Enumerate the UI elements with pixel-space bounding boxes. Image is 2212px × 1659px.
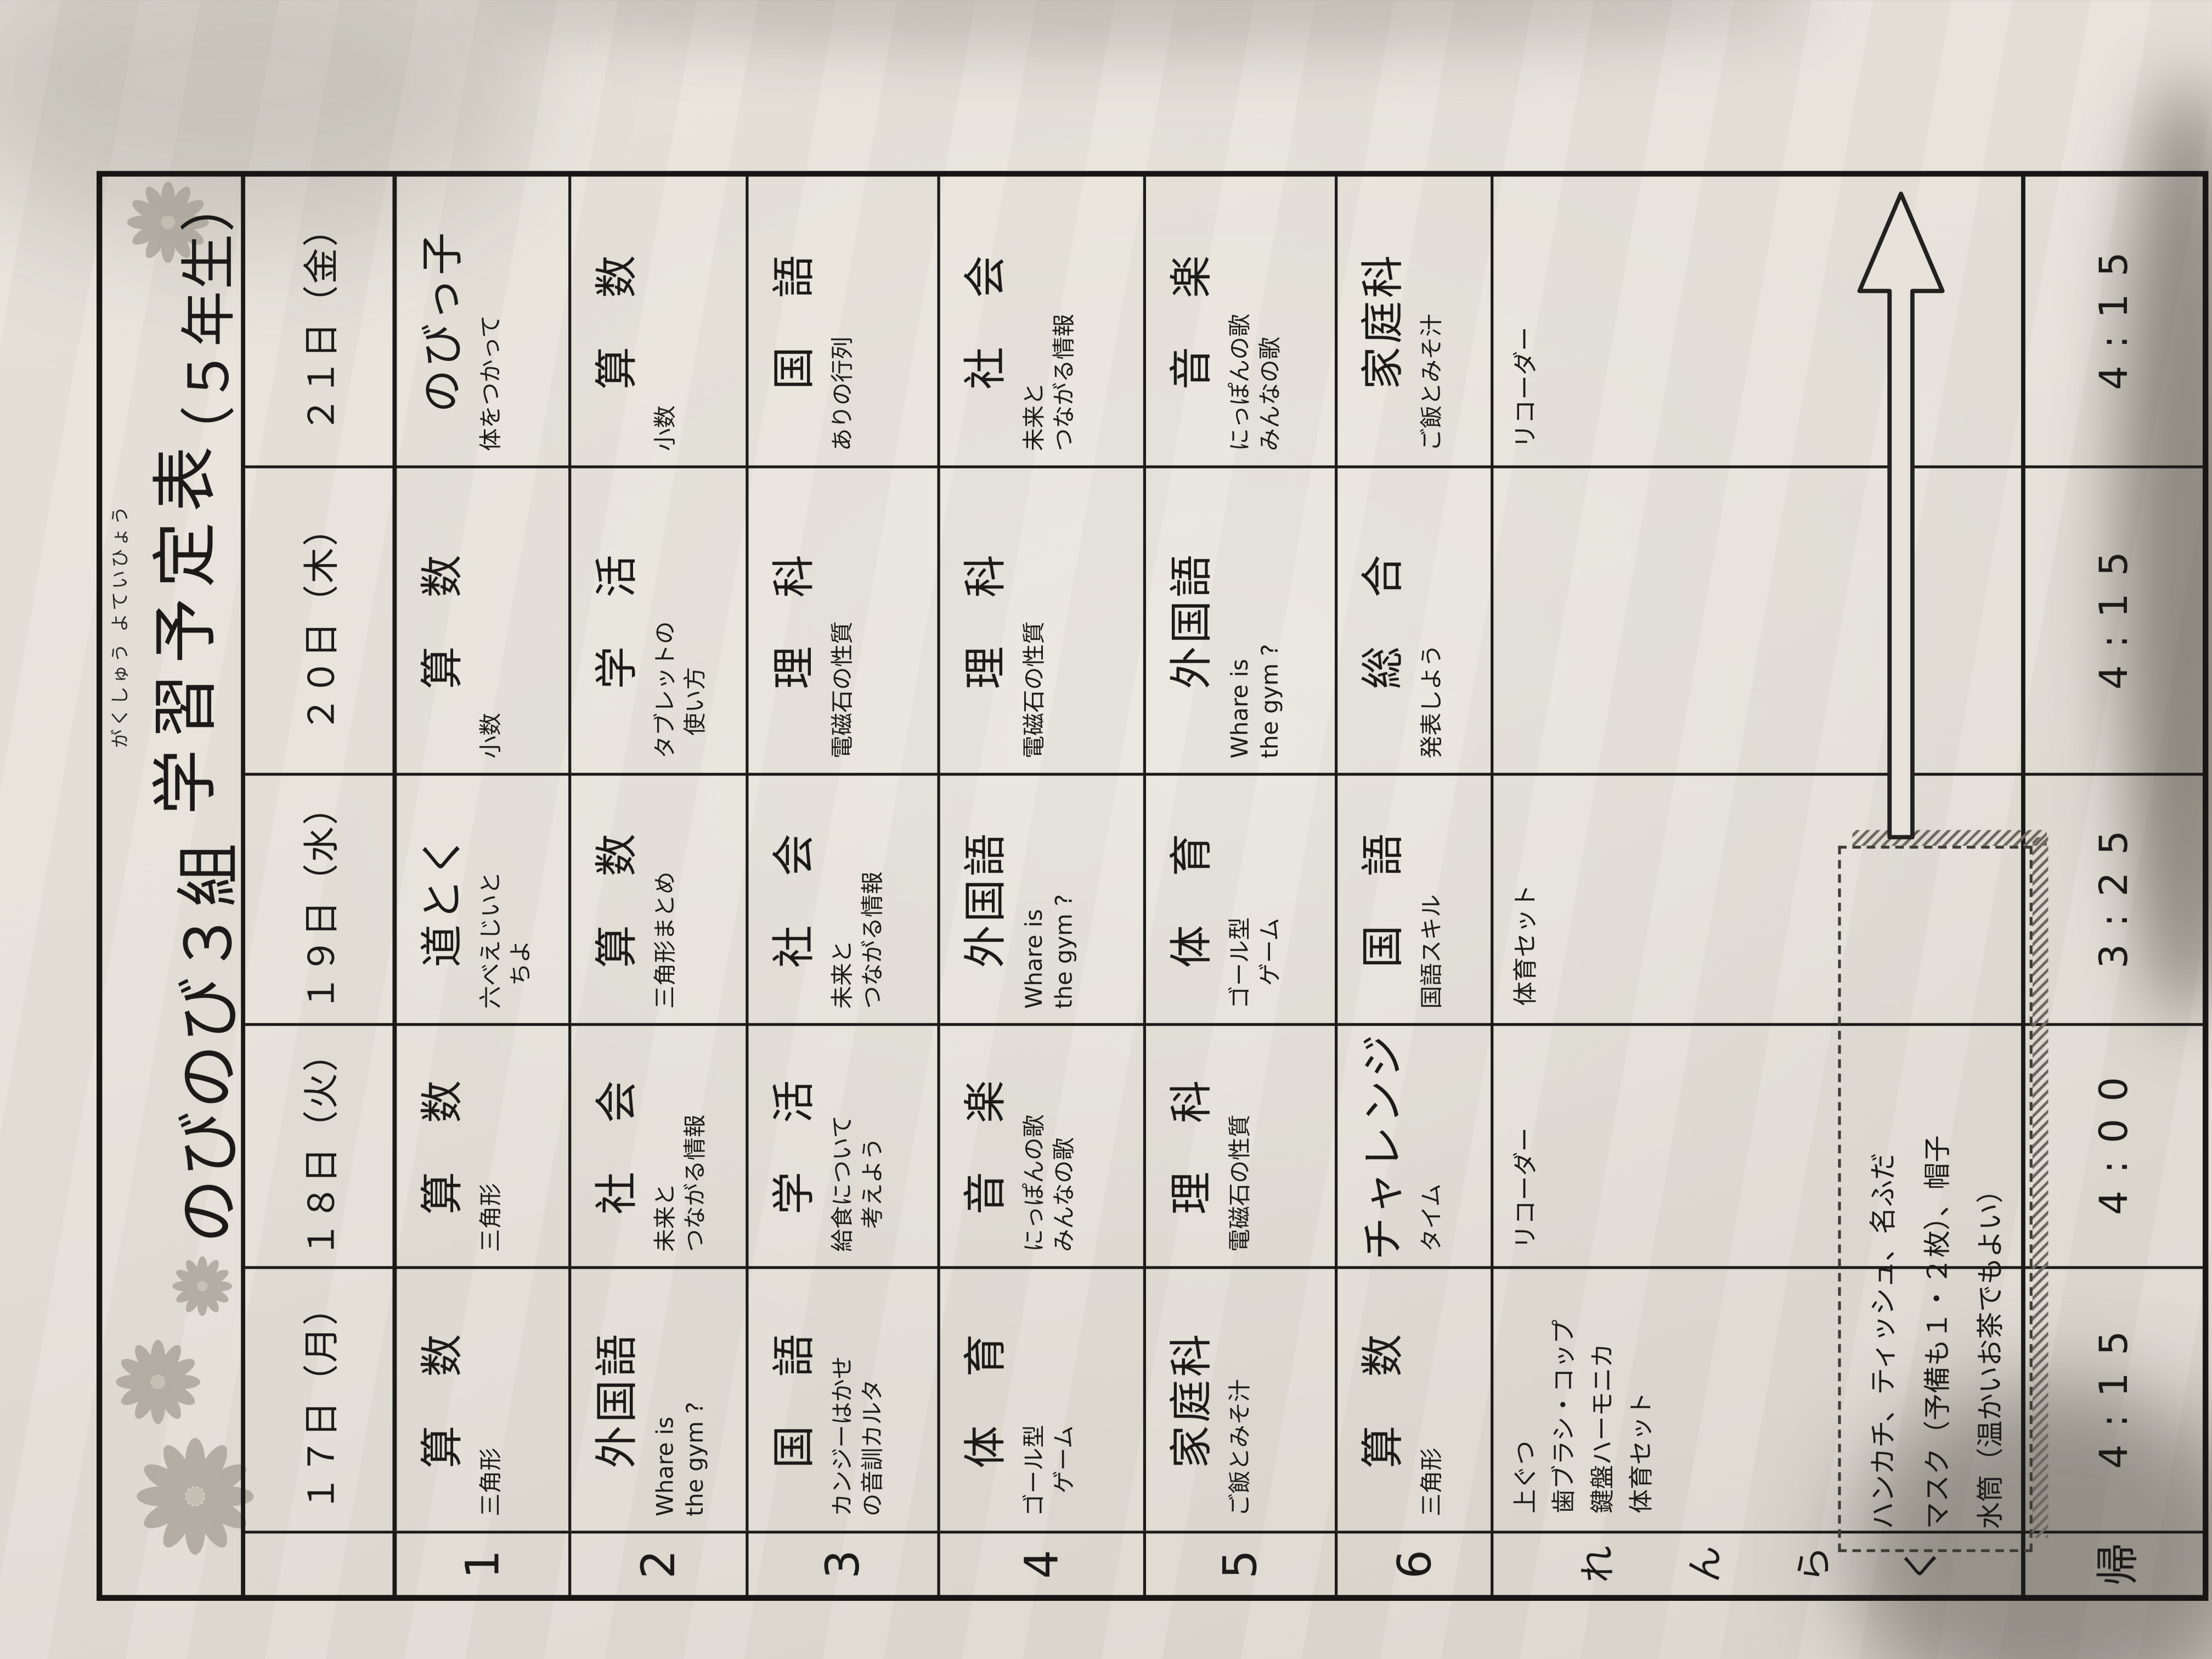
day-header-wed: １９日（水） (245, 773, 397, 1023)
cell-mon-2: 外国語Whare isthe gym ? (571, 1266, 748, 1531)
topic-line: ゴール型 (1224, 778, 1255, 1009)
renraku-char: れ (1568, 1545, 1621, 1583)
cell-fri-4: 社 会未来とつながる情報 (940, 177, 1146, 465)
note-line: マスク（予備も１・２枚）、帽子 (1916, 868, 1954, 1529)
renraku-items (1493, 469, 1508, 773)
topic-line: ちよ (505, 778, 535, 1009)
title-furigana: がくしゅう よていひょう (105, 420, 133, 832)
cell-wed-2: 算 数三角形まとめ (571, 773, 748, 1023)
renraku-line: リコーダー (1508, 182, 1546, 448)
topic-line: Whare is (1224, 471, 1255, 759)
topic-line: 電磁石の性質 (1019, 471, 1049, 759)
cell-wed-5: 体 育ゴール型 ゲーム (1146, 773, 1338, 1023)
topic-line: 三角形 (476, 1272, 506, 1516)
subject-text: 理 科 (1156, 1026, 1219, 1266)
flower-icon (171, 1255, 234, 1318)
topic-line: にっぽんの歌 (1019, 1029, 1049, 1252)
cell-tue-5: 理 科電磁石の性質 (1146, 1023, 1338, 1266)
note-line: 水筒（温かいお茶でもよい） (1970, 868, 2008, 1529)
renraku-line: 鍵盤ハーモニカ (1585, 1275, 1623, 1514)
subject-text: 国 語 (759, 177, 822, 465)
topic-text: 発表しよう (1410, 469, 1446, 773)
page-title: 学習予定表 (134, 420, 228, 832)
topic-text: 電磁石の性質 (1013, 469, 1049, 773)
cell-wed-1: 道とく六べえじいと ちよ (397, 773, 571, 1023)
subject-text: 家庭科 (1156, 1269, 1219, 1531)
topic-line: 小数 (650, 179, 680, 451)
day-header-tue: １８日（火） (245, 1023, 397, 1266)
topic-line: カンジーはかせ (827, 1272, 857, 1516)
cell-thu-4: 理 科電磁石の性質 (940, 465, 1146, 772)
cell-fri-6: 家庭科ご飯とみそ汁 (1338, 177, 1493, 465)
renraku-char: ん (1677, 1545, 1729, 1583)
renraku-line: 上ぐつ (1508, 1275, 1546, 1514)
schedule-sheet: のびのび３組 がくしゅう よていひょう 学習予定表 （５年生） １７日（月） １… (97, 171, 2209, 1600)
topic-text: ありの行列 (821, 177, 857, 465)
subject-text: 体 育 (950, 1269, 1013, 1531)
topic-line: ゲーム (1049, 1272, 1079, 1516)
class-name: のびのび３組 (156, 840, 249, 1243)
day-header-fri: ２１日（金） (245, 177, 397, 465)
topic-line: つながる情報 (857, 778, 887, 1009)
period-label-1: 1 (397, 1531, 571, 1595)
renraku-line: 歯ブラシ・コップ (1547, 1275, 1585, 1514)
topic-line: 未来と (827, 778, 857, 1009)
cell-tue-4: 音 楽にっぽんの歌みんなの歌 (940, 1023, 1146, 1266)
topic-line: 未来と (1019, 179, 1049, 451)
topic-line: みんなの歌 (1049, 1029, 1079, 1252)
topic-text: タイム (1410, 1026, 1446, 1266)
schedule-photo: のびのび３組 がくしゅう よていひょう 学習予定表 （５年生） １７日（月） １… (0, 0, 2212, 1659)
topic-line: タイム (1417, 1029, 1447, 1252)
topic-line: の音訓カルタ (857, 1272, 887, 1516)
topic-text: 電磁石の性質 (821, 469, 857, 773)
subject-text: 外国語 (950, 776, 1013, 1023)
topic-line: the gym ? (1049, 778, 1079, 1009)
topic-line: Whare is (650, 1272, 680, 1516)
topic-text: 未来とつながる情報 (1013, 177, 1079, 465)
cell-tue-1: 算 数三角形 (397, 1023, 571, 1266)
dismissal-time-mon: 4:15 (2025, 1266, 2203, 1531)
topic-text: 三角形 (470, 1269, 505, 1531)
subject-text: 国 語 (759, 1269, 822, 1531)
topic-line: ご飯とみそ汁 (1417, 179, 1447, 451)
subject-text: 外国語 (1156, 469, 1219, 773)
subject-text: 社 会 (950, 177, 1013, 465)
cell-wed-3: 社 会未来とつながる情報 (748, 773, 940, 1023)
note-line: ハンカチ、ティッシュ、名ふだ (1862, 868, 1900, 1529)
subject-text: 算 数 (1347, 1269, 1410, 1531)
subject-text: 算 数 (407, 1269, 470, 1531)
topic-text: 給食について 考えよう (821, 1026, 887, 1266)
subject-text: 音 楽 (1156, 177, 1219, 465)
period-label-6: 6 (1338, 1531, 1493, 1595)
subject-text: 家庭科 (1347, 177, 1410, 465)
main-title-block: がくしゅう よていひょう 学習予定表 (105, 420, 228, 832)
topic-line: 未来と (650, 1029, 680, 1252)
renraku-items: リコーダー (1493, 177, 1546, 465)
topic-text: 三角形 (470, 1026, 505, 1266)
note-box: ハンカチ、ティッシュ、名ふだ マスク（予備も１・２枚）、帽子 水筒（温かいお茶で… (1838, 846, 2032, 1553)
topic-line: 電磁石の性質 (1224, 1029, 1255, 1252)
cell-thu-3: 理 科電磁石の性質 (748, 465, 940, 772)
cell-mon-4: 体 育ゴール型 ゲーム (940, 1266, 1146, 1531)
renraku-char: ら (1785, 1545, 1837, 1583)
renraku-items: リコーダー (1493, 1026, 1546, 1266)
cell-mon-1: 算 数三角形 (397, 1266, 571, 1531)
topic-text: ゴール型 ゲーム (1219, 776, 1285, 1023)
topic-text: 未来とつながる情報 (644, 1026, 710, 1266)
cell-thu-5: 外国語Whare isthe gym ? (1146, 465, 1338, 772)
topic-text: Whare isthe gym ? (644, 1269, 710, 1531)
subject-text: 算 数 (581, 776, 644, 1023)
topic-text: 国語スキル (1410, 776, 1446, 1023)
topic-line: 給食について (827, 1029, 857, 1252)
topic-line: ご飯とみそ汁 (1224, 1272, 1255, 1516)
topic-line: 電磁石の性質 (827, 471, 857, 759)
topic-line: 三角形まとめ (650, 778, 680, 1009)
cell-mon-6: 算 数三角形 (1338, 1266, 1493, 1531)
period-label-4: 4 (940, 1531, 1146, 1595)
topic-line: つながる情報 (680, 1029, 710, 1252)
topic-text: Whare isthe gym ? (1013, 776, 1079, 1023)
dismissal-time-fri: 4:15 (2025, 177, 2203, 465)
cell-thu-2: 学 活タブレットの 使い方 (571, 465, 748, 772)
dismissal-time-thu: 4:15 (2025, 465, 2203, 772)
topic-text: ご飯とみそ汁 (1219, 1269, 1255, 1531)
topic-line: the gym ? (680, 1272, 710, 1516)
cell-tue-3: 学 活給食について 考えよう (748, 1023, 940, 1266)
flower-icon (114, 1338, 202, 1426)
cell-tue-2: 社 会未来とつながる情報 (571, 1023, 748, 1266)
topic-line: 国語スキル (1417, 778, 1447, 1009)
cell-thu-6: 総 合発表しよう (1338, 465, 1493, 772)
grade-label: （５年生） (165, 175, 245, 461)
topic-line: 小数 (476, 471, 506, 759)
subject-text: 音 楽 (950, 1026, 1013, 1266)
subject-text: 外国語 (581, 1269, 644, 1531)
subject-text: 理 科 (950, 469, 1013, 773)
topic-line: ゴール型 (1019, 1272, 1049, 1516)
topic-text: ゴール型 ゲーム (1013, 1269, 1079, 1531)
subject-text: 体 育 (1156, 776, 1219, 1023)
topic-line: 六べえじいと (476, 778, 506, 1009)
period-label-3: 3 (748, 1531, 940, 1595)
subject-text: 総 合 (1347, 469, 1410, 773)
subject-text: 学 活 (759, 1026, 822, 1266)
cell-wed-4: 外国語Whare isthe gym ? (940, 773, 1146, 1023)
topic-line: 発表しよう (1417, 471, 1447, 759)
sheet-title-bar: のびのび３組 がくしゅう よていひょう 学習予定表 （５年生） (102, 177, 241, 1595)
topic-text: 未来とつながる情報 (821, 776, 887, 1023)
subject-text: 算 数 (407, 469, 470, 773)
cell-mon-3: 国 語カンジーはかせの音訓カルタ (748, 1266, 940, 1531)
topic-text: 小数 (470, 469, 505, 773)
dismissal-time-wed: 3:25 (2025, 773, 2203, 1023)
subject-text: 算 数 (407, 1026, 470, 1266)
subject-text: 国 語 (1347, 776, 1410, 1023)
topic-line: みんなの歌 (1255, 179, 1285, 451)
subject-text: のびっ子 (407, 177, 470, 465)
renraku-line: 体育セット (1508, 781, 1546, 1006)
topic-text: 三角形 (1410, 1269, 1446, 1531)
cell-fri-3: 国 語ありの行列 (748, 177, 940, 465)
topic-line: ゲーム (1255, 778, 1285, 1009)
cell-fri-2: 算 数小数 (571, 177, 748, 465)
flower-icon (134, 1435, 257, 1558)
subject-text: 算 数 (581, 177, 644, 465)
cell-wed-6: 国 語国語スキル (1338, 773, 1493, 1023)
topic-line: ありの行列 (827, 179, 857, 451)
week-arrow-icon (1844, 182, 1959, 845)
cell-fri-1: のびっ子体をつかって (397, 177, 571, 465)
topic-line: Whare is (1019, 778, 1049, 1009)
subject-text: 社 会 (759, 776, 822, 1023)
topic-line: 考えよう (857, 1029, 887, 1252)
topic-text: にっぽんの歌みんなの歌 (1013, 1026, 1079, 1266)
topic-line: タブレットの (650, 471, 680, 759)
topic-text: 小数 (644, 177, 680, 465)
subject-text: 道とく (407, 776, 470, 1023)
cell-thu-1: 算 数小数 (397, 465, 571, 772)
dismissal-label: 帰 (2025, 1531, 2203, 1595)
renraku-line: 体育セット (1623, 1275, 1662, 1514)
renraku-line: リコーダー (1508, 1031, 1546, 1249)
topic-text: 三角形まとめ (644, 776, 680, 1023)
topic-line: 使い方 (680, 471, 710, 759)
dismissal-time-tue: 4:00 (2025, 1023, 2203, 1266)
day-header-thu: ２０日（木） (245, 465, 397, 772)
topic-text: 電磁石の性質 (1219, 1026, 1255, 1266)
cell-tue-6: チャレンジタイム (1338, 1023, 1493, 1266)
subject-text: 学 活 (581, 469, 644, 773)
topic-text: Whare isthe gym ? (1219, 469, 1285, 773)
topic-line: the gym ? (1255, 471, 1285, 759)
renraku-items: 上ぐつ歯ブラシ・コップ鍵盤ハーモニカ体育セット (1493, 1269, 1662, 1531)
period-label-2: 2 (571, 1531, 748, 1595)
topic-line: 三角形 (476, 1029, 506, 1252)
topic-line: 体をつかって (476, 179, 506, 451)
topic-text: 六べえじいと ちよ (470, 776, 535, 1023)
subject-text: チャレンジ (1347, 1026, 1410, 1266)
topic-text: カンジーはかせの音訓カルタ (821, 1269, 887, 1531)
cell-fri-5: 音 楽にっぽんの歌みんなの歌 (1146, 177, 1338, 465)
subject-text: 社 会 (581, 1026, 644, 1266)
renraku-items: 体育セット (1493, 776, 1546, 1023)
subject-text: 理 科 (759, 469, 822, 773)
topic-line: にっぽんの歌 (1224, 179, 1255, 451)
topic-text: にっぽんの歌みんなの歌 (1219, 177, 1285, 465)
topic-text: タブレットの 使い方 (644, 469, 710, 773)
cell-mon-5: 家庭科ご飯とみそ汁 (1146, 1266, 1338, 1531)
topic-line: つながる情報 (1049, 179, 1079, 451)
period-label-5: 5 (1146, 1531, 1338, 1595)
corner-cell (245, 1531, 397, 1595)
topic-text: ご飯とみそ汁 (1410, 177, 1446, 465)
topic-text: 体をつかって (470, 177, 505, 465)
topic-line: 三角形 (1417, 1272, 1447, 1516)
day-header-mon: １７日（月） (245, 1266, 397, 1531)
